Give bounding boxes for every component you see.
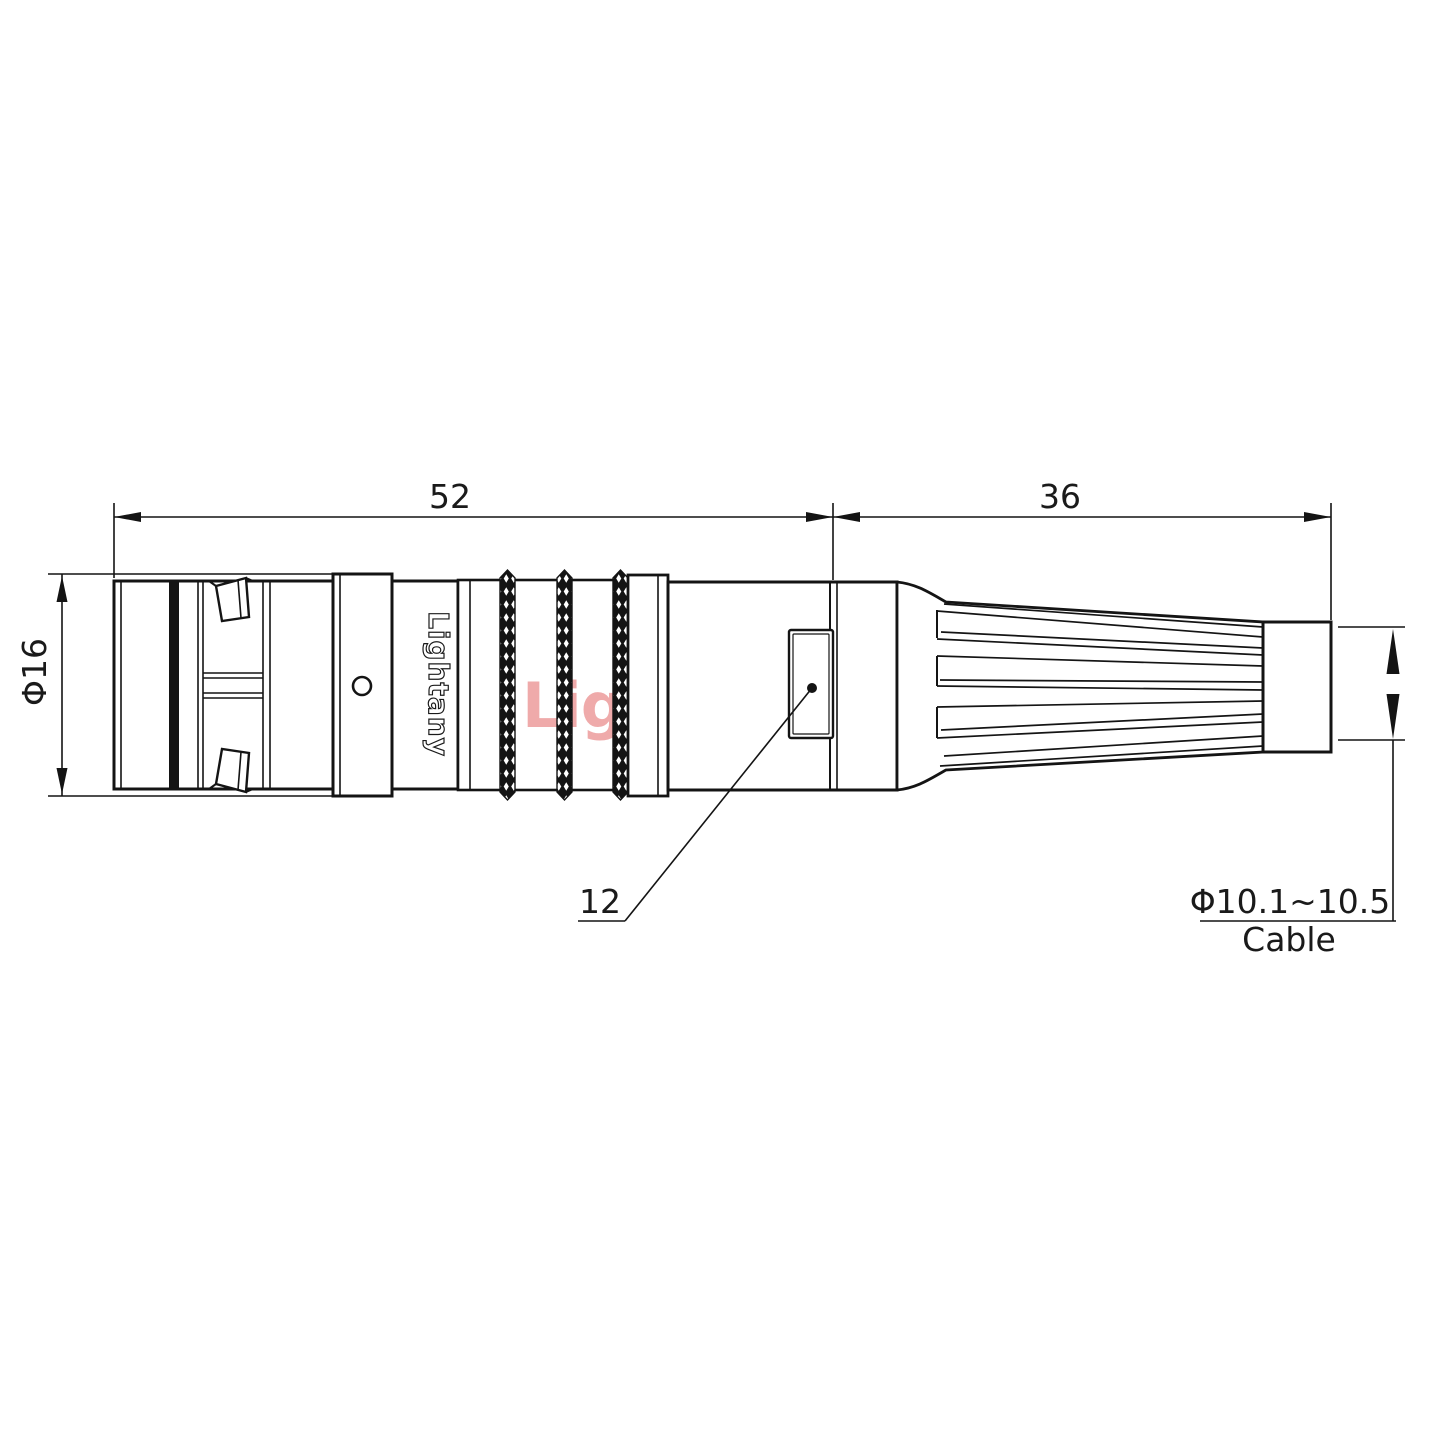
strain-relief-boot bbox=[897, 582, 1263, 790]
flange-ring bbox=[628, 575, 668, 796]
arrowhead-up bbox=[1387, 629, 1400, 674]
dim-label-front-length: 52 bbox=[429, 477, 471, 516]
technical-drawing-canvas: Φ16 52 36 bbox=[0, 0, 1440, 1440]
arrowhead-right bbox=[806, 512, 833, 522]
collar-hole bbox=[353, 677, 371, 695]
dim-label-latch: 12 bbox=[579, 882, 621, 921]
knurl-ring-3 bbox=[613, 570, 628, 800]
arrowhead-down bbox=[1387, 694, 1400, 739]
connector-drawing: Φ16 52 36 bbox=[0, 0, 1440, 1440]
front-groove bbox=[169, 581, 179, 789]
dim-label-cable: Cable bbox=[1242, 920, 1336, 959]
cable-end-cap bbox=[1263, 622, 1331, 752]
arrowhead-down bbox=[57, 768, 68, 794]
latch-window bbox=[789, 630, 833, 738]
dim-label-cable-range: Φ10.1~10.5 bbox=[1190, 882, 1391, 921]
arrowhead-up bbox=[57, 576, 68, 602]
dim-label-diameter: Φ16 bbox=[15, 638, 54, 706]
knurl-ring-2 bbox=[557, 570, 572, 800]
dim-label-rear-length: 36 bbox=[1039, 477, 1081, 516]
front-shell bbox=[114, 578, 333, 792]
arrowhead-left bbox=[114, 512, 141, 522]
arrowhead-right bbox=[1304, 512, 1331, 522]
backshell bbox=[668, 582, 897, 790]
arrowhead-left bbox=[833, 512, 860, 522]
brand-logo: Lightany bbox=[422, 611, 455, 757]
coupling-collar bbox=[333, 574, 392, 796]
knurl-ring-1 bbox=[500, 570, 515, 800]
